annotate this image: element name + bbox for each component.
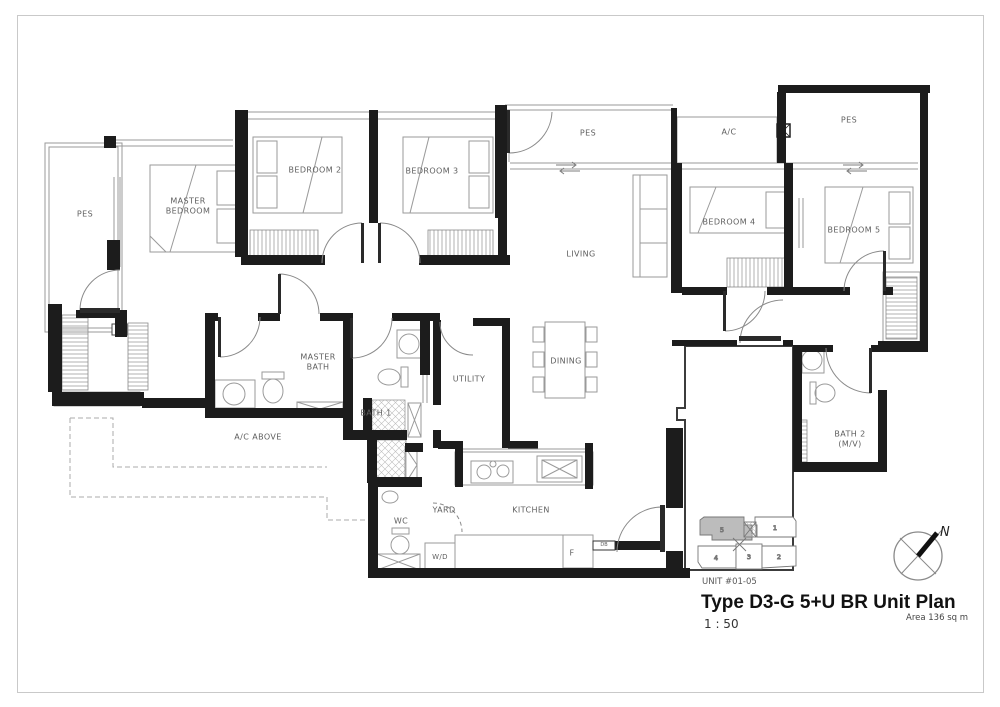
room-label-master-bath: MASTER BATH xyxy=(292,353,344,374)
bath2-fixtures xyxy=(802,348,835,404)
room-label-bedroom3: BEDROOM 3 xyxy=(406,167,459,176)
sofa xyxy=(633,175,667,277)
north-compass-icon: N xyxy=(894,525,950,580)
plan-title: Type D3-G 5+U BR Unit Plan xyxy=(701,592,956,614)
keyplan: 5 1 4 3 2 xyxy=(698,517,796,569)
plan-scale: 1 : 50 xyxy=(704,617,739,631)
ac-above-dashed-outline xyxy=(70,418,368,520)
room-label-living: LIVING xyxy=(566,250,595,259)
room-label-kitchen: KITCHEN xyxy=(512,506,549,515)
room-label-master-bedroom: MASTER BEDROOM xyxy=(156,197,220,218)
bed-2 xyxy=(253,137,342,213)
room-label-utility: UTILITY xyxy=(453,375,486,384)
room-label-pes-right: PES xyxy=(841,116,857,125)
room-label-bath2: BATH 2 (M/V) xyxy=(825,430,875,451)
fridge xyxy=(563,535,593,568)
room-label-ac-top: A/C xyxy=(722,128,737,137)
room-label-wc: WC xyxy=(394,517,408,526)
north-label: N xyxy=(940,525,950,540)
room-label-ac-above: A/C ABOVE xyxy=(234,433,281,442)
room-label-pes-top: PES xyxy=(580,129,596,138)
keyplan-unit-4: 4 xyxy=(714,554,718,562)
keyplan-unit-caption: UNIT #01-05 xyxy=(702,577,757,587)
room-label-wd: W/D xyxy=(432,553,448,561)
room-label-fridge: F xyxy=(569,549,574,558)
keyplan-unit-3: 3 xyxy=(747,553,751,561)
room-label-pes-left: PES xyxy=(77,210,93,219)
keyplan-unit-5: 5 xyxy=(720,526,724,534)
db-label: DB xyxy=(600,542,607,548)
plan-area: Area 136 sq m xyxy=(760,613,968,623)
wc-fixtures xyxy=(377,491,420,570)
keyplan-unit-2: 2 xyxy=(777,553,781,561)
room-label-bedroom2: BEDROOM 2 xyxy=(289,166,342,175)
room-label-bedroom5: BEDROOM 5 xyxy=(828,226,881,235)
room-label-bedroom4: BEDROOM 4 xyxy=(703,218,756,227)
sliding-door-icon xyxy=(556,162,867,174)
room-label-dining: DINING xyxy=(550,357,581,366)
keyplan-unit-1: 1 xyxy=(773,524,777,532)
room-label-bath1: BATH 1 xyxy=(360,409,391,418)
floorplan-page: 5 1 4 3 2 N PES MASTER BEDROOM BEDROOM 2… xyxy=(0,0,1000,707)
room-label-yard: YARD xyxy=(432,506,455,515)
